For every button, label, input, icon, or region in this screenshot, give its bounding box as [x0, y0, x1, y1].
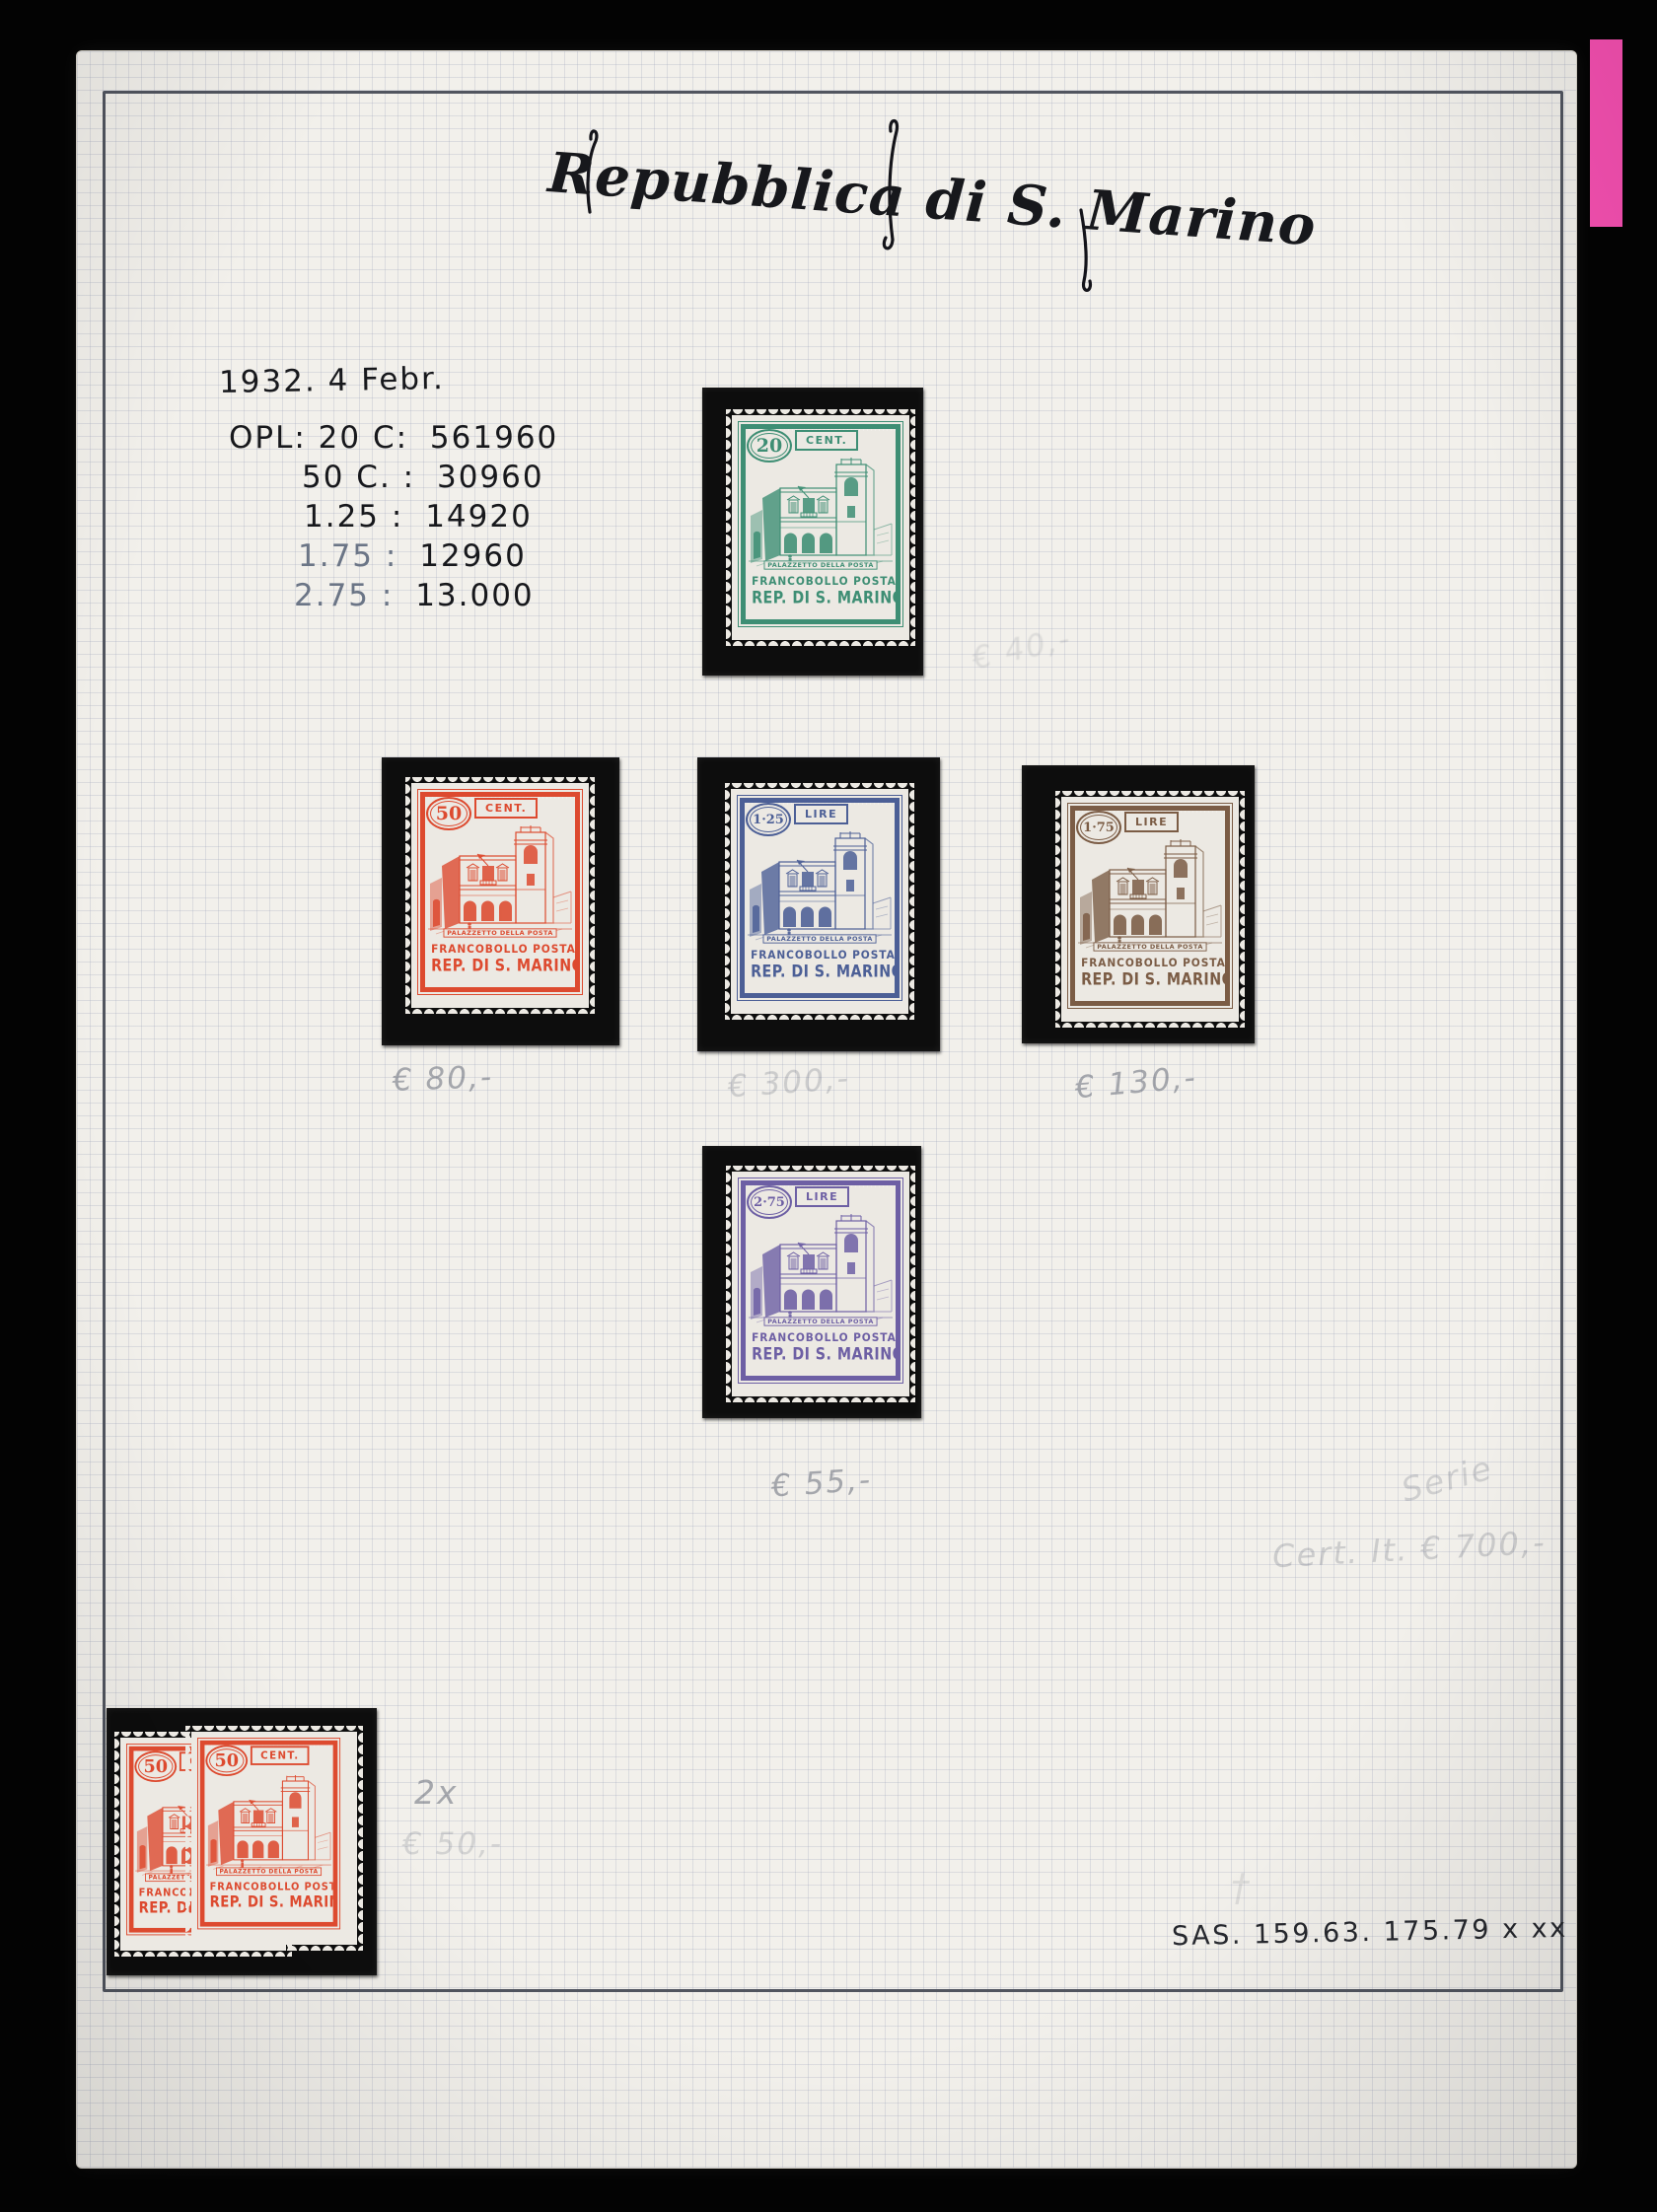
post-office-building-icon	[425, 824, 575, 939]
date-note: 1932. 4 Febr.	[219, 361, 445, 400]
qty: 12960	[419, 538, 527, 574]
qty: 30960	[437, 460, 544, 495]
pencil-price-50c: € 80,-	[392, 1059, 493, 1099]
stamp-value-oval: 50	[426, 797, 471, 830]
stamp-vignette: PALAZZETTO DELLA POSTA	[1075, 838, 1225, 953]
stamp-unit-label: CENT.	[795, 430, 858, 451]
qty: 561960	[430, 420, 558, 456]
denom: 1.75 :	[298, 538, 397, 574]
stamp-50-cent: 50 CENT. PALAZZETTO DELLA POSTA FRANCOBO…	[405, 777, 595, 1014]
stamp-vignette: PALAZZETTO DELLA POSTA	[746, 457, 896, 571]
stamp-caption: PALAZZETTO DELLA POSTA	[764, 560, 878, 569]
stamp-mount-175: 1·75 LIRE PALAZZETTO DELLA POSTA FRANCOB…	[1022, 765, 1255, 1043]
qty: 14920	[425, 499, 533, 535]
stamp-mount-50c: 50 CENT. PALAZZETTO DELLA POSTA FRANCOBO…	[382, 757, 619, 1045]
stamp-vignette: PALAZZETTO DELLA POSTA	[204, 1770, 332, 1877]
stamp-caption: PALAZZETTO DELLA POSTA	[1094, 942, 1207, 951]
stamp-line1: FRANCOBOLLO POSTALE	[431, 942, 569, 956]
stamp-mount-50c-pair: 50 CENT. PALAZZETTO DELLA POSTA FRANCOBO…	[107, 1708, 377, 1975]
qty: 13.000	[415, 578, 534, 613]
stamp-line2: REP. DI S. MARINO	[1081, 969, 1219, 989]
stamp-line1: FRANCOBOLLO POSTALE	[752, 574, 890, 588]
stamp-line2: REP. DI S. MARINO	[751, 962, 889, 981]
stamp-value-oval: 20	[747, 429, 792, 463]
pink-index-tab	[1590, 39, 1622, 227]
stamp-value-oval: 2·75	[747, 1185, 792, 1219]
stamp-caption: PALAZZETTO DELLA POSTA	[763, 934, 877, 943]
stamp-vignette: PALAZZETTO DELLA POSTA	[745, 830, 895, 945]
print-run-line-5: 2.75 : 13.000	[294, 578, 535, 613]
print-run-line-4: 1.75 : 12960	[298, 538, 527, 574]
stamp-1-25-lire: 1·25 LIRE PALAZZETTO DELLA POSTA FRANCOB…	[725, 783, 914, 1020]
stamp-frame: 1·75 LIRE PALAZZETTO DELLA POSTA FRANCOB…	[1067, 803, 1233, 1009]
stamp-value-oval: 50	[134, 1750, 177, 1782]
stamp-value-oval: 1·25	[746, 803, 791, 836]
stamp-frame: 1·25 LIRE PALAZZETTO DELLA POSTA FRANCOB…	[737, 795, 902, 1001]
stamp-frame: 20 CENT. PALAZZETTO DELLA POSTA FRANCOBO…	[738, 421, 903, 627]
stamp-unit-label: CENT.	[251, 1746, 310, 1765]
stamp-line2: REP. DI S. MARINO	[431, 956, 569, 975]
print-run-line-3: 1.25 : 14920	[304, 499, 533, 535]
stamp-frame: 50 CENT. PALAZZETTO DELLA POSTA FRANCOBO…	[417, 789, 583, 995]
denom: 2.75 :	[294, 578, 394, 613]
pencil-erased-mark: †	[1231, 1866, 1252, 1909]
stamp-vignette: PALAZZETTO DELLA POSTA	[425, 824, 575, 939]
stamp-line1: FRANCOBOLLO POSTALE	[1081, 956, 1219, 969]
post-office-building-icon	[1075, 838, 1225, 953]
stamp-line2: REP. DI S. MARINO	[752, 588, 890, 607]
stamp-mount-20c: 20 CENT. PALAZZETTO DELLA POSTA FRANCOBO…	[702, 388, 923, 676]
stamp-unit-label: CENT.	[474, 798, 538, 819]
stamp-frame: 50 CENT. PALAZZETTO DELLA POSTA FRANCOBO…	[197, 1738, 340, 1929]
opl-label: OPL:	[229, 420, 307, 456]
stamp-value-oval: 1·75	[1076, 811, 1121, 844]
pencil-pair-count: 2x	[414, 1773, 459, 1812]
stamp-caption: PALAZZETTO DELLA POSTA	[216, 1868, 322, 1877]
post-office-building-icon	[746, 457, 896, 571]
post-office-building-icon	[745, 830, 895, 945]
denom: 50 C. :	[302, 460, 415, 495]
stamp-2-75-lire: 2·75 LIRE PALAZZETTO DELLA POSTA FRANCOB…	[726, 1166, 915, 1402]
stamp-unit-label: LIRE	[1124, 812, 1179, 832]
stamp-20-cent: 20 CENT. PALAZZETTO DELLA POSTA FRANCOBO…	[726, 409, 915, 646]
denom: 1.25 :	[304, 499, 403, 535]
pencil-pair-price: € 50,-	[402, 1826, 503, 1862]
post-office-building-icon	[746, 1213, 896, 1327]
stamp-mount-275: 2·75 LIRE PALAZZETTO DELLA POSTA FRANCOB…	[702, 1146, 921, 1418]
stamp-mount-125: 1·25 LIRE PALAZZETTO DELLA POSTA FRANCOB…	[697, 757, 940, 1051]
stamp-line1: FRANCOBOLLO POSTALE	[210, 1880, 328, 1892]
stamp-vignette: PALAZZETTO DELLA POSTA	[746, 1213, 896, 1327]
stamp-line1: FRANCOBOLLO POSTALE	[752, 1330, 890, 1344]
pencil-price-275: € 55,-	[770, 1462, 873, 1504]
stamp-50-cent-pair-right: 50 CENT. PALAZZETTO DELLA POSTA FRANCOBO…	[185, 1726, 363, 1951]
stamp-caption: PALAZZETTO DELLA POSTA	[764, 1317, 878, 1325]
stamp-line2: REP. DI S. MARINO	[752, 1344, 890, 1364]
print-run-line-2: 50 C. : 30960	[302, 460, 544, 495]
post-office-building-icon	[204, 1770, 332, 1877]
stamp-unit-label: LIRE	[794, 804, 848, 824]
stamp-line2: REP. DI S. MARINO	[210, 1892, 328, 1910]
stamp-value-oval: 50	[205, 1745, 248, 1776]
denom: 20 C:	[319, 420, 408, 456]
photo-stage: Repubblica di S. Marino 1932. 4 Febr. OP…	[0, 0, 1657, 2212]
stamp-line1: FRANCOBOLLO POSTALE	[751, 948, 889, 962]
stamp-1-75-lire: 1·75 LIRE PALAZZETTO DELLA POSTA FRANCOB…	[1055, 791, 1245, 1028]
stamp-frame: 2·75 LIRE PALAZZETTO DELLA POSTA FRANCOB…	[738, 1177, 903, 1384]
stamp-unit-label: LIRE	[795, 1186, 849, 1207]
stamp-caption: PALAZZETTO DELLA POSTA	[444, 928, 557, 937]
print-run-line-1: OPL: 20 C: 561960	[229, 420, 558, 456]
